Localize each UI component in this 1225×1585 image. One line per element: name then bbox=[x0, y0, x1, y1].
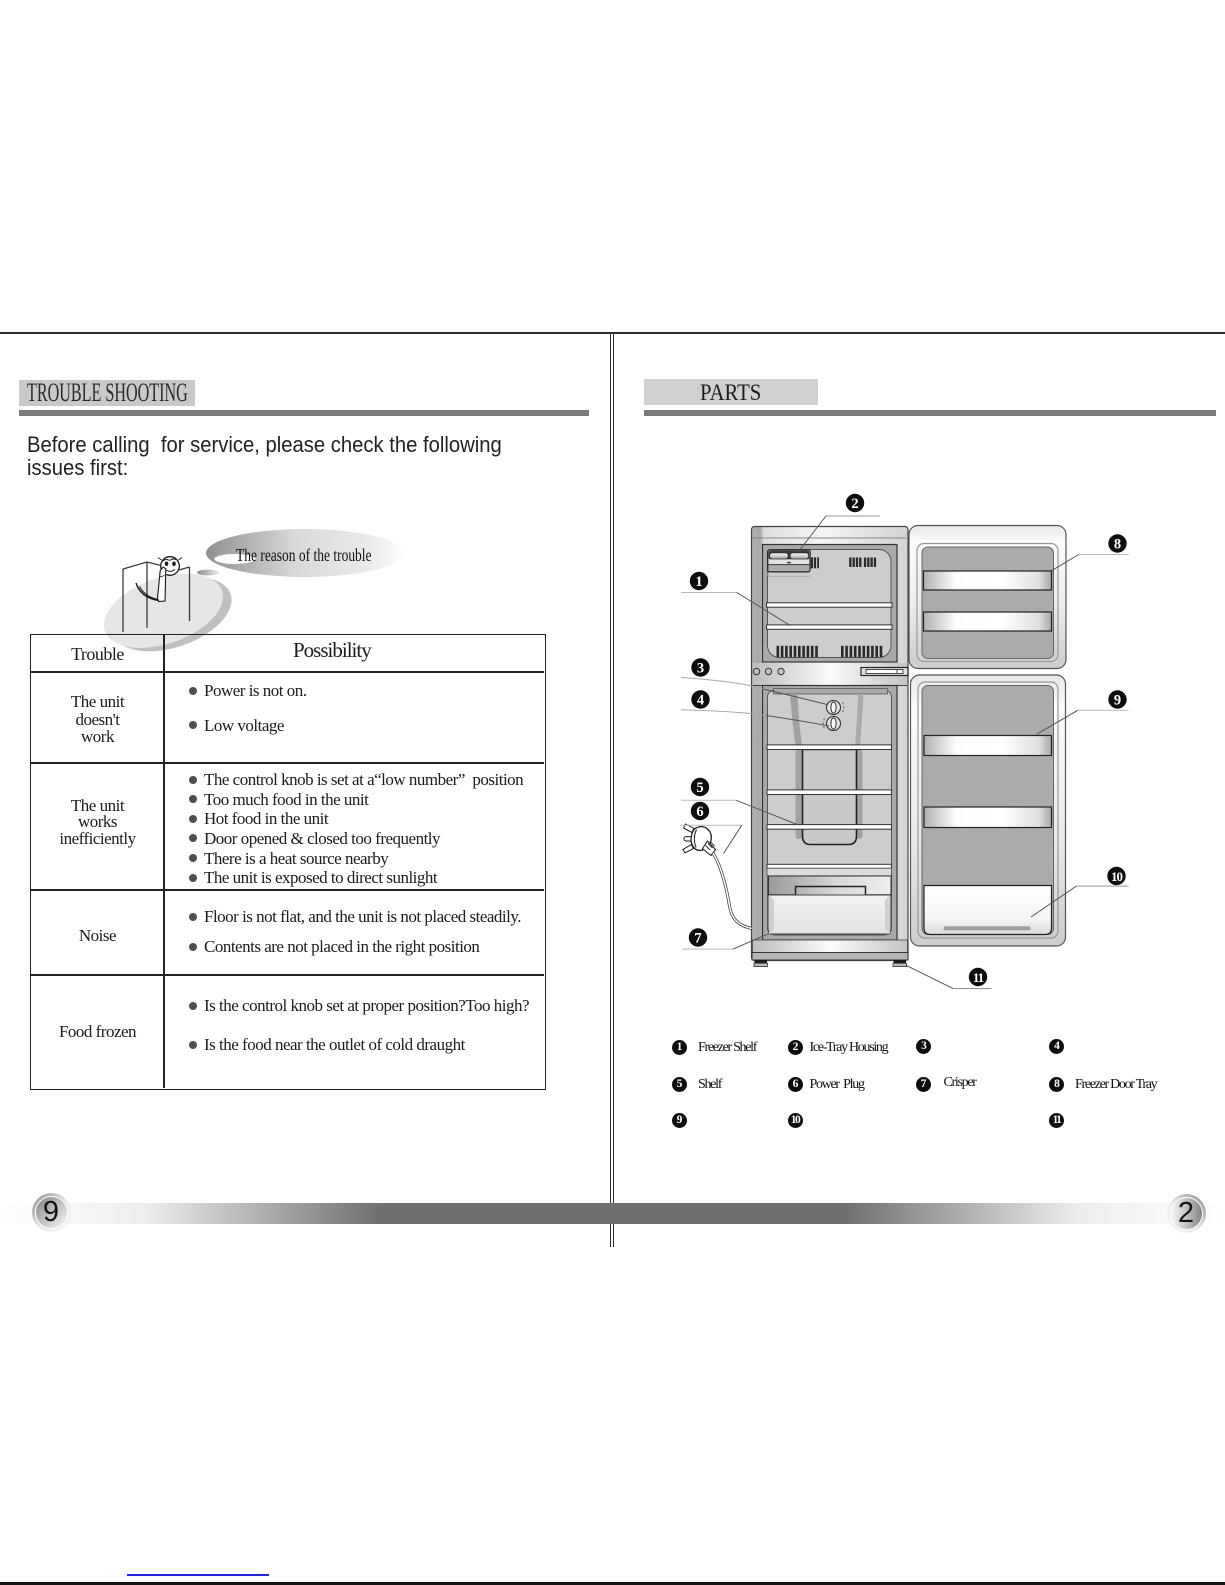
svg-text:8: 8 bbox=[1114, 537, 1121, 553]
svg-text:The reason of the trouble: The reason of the trouble bbox=[236, 546, 372, 565]
svg-text:4: 4 bbox=[697, 693, 704, 709]
svg-text:1: 1 bbox=[695, 574, 702, 590]
svg-text:7: 7 bbox=[694, 931, 701, 947]
svg-text:5: 5 bbox=[696, 780, 703, 796]
svg-text:2: 2 bbox=[851, 496, 858, 512]
svg-text:11: 11 bbox=[973, 970, 984, 985]
svg-text:6: 6 bbox=[696, 804, 703, 820]
svg-text:10: 10 bbox=[1111, 869, 1123, 884]
svg-text:3: 3 bbox=[697, 661, 704, 677]
svg-text:9: 9 bbox=[1114, 693, 1121, 709]
